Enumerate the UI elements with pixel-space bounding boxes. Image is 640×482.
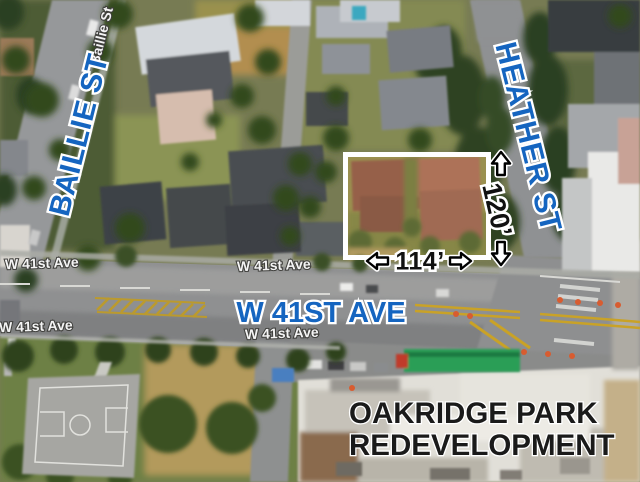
svg-text:114’: 114’ (395, 248, 444, 276)
svg-text:OAKRIDGE PARK: OAKRIDGE PARK (349, 397, 598, 430)
svg-text:REDEVELOPMENT: REDEVELOPMENT (349, 429, 615, 462)
svg-text:W 41st Ave: W 41st Ave (5, 254, 79, 273)
svg-text:W 41st Ave: W 41st Ave (237, 256, 311, 275)
svg-text:W 41ST AVE: W 41ST AVE (236, 297, 405, 329)
svg-text:W 41st Ave: W 41st Ave (0, 317, 73, 336)
